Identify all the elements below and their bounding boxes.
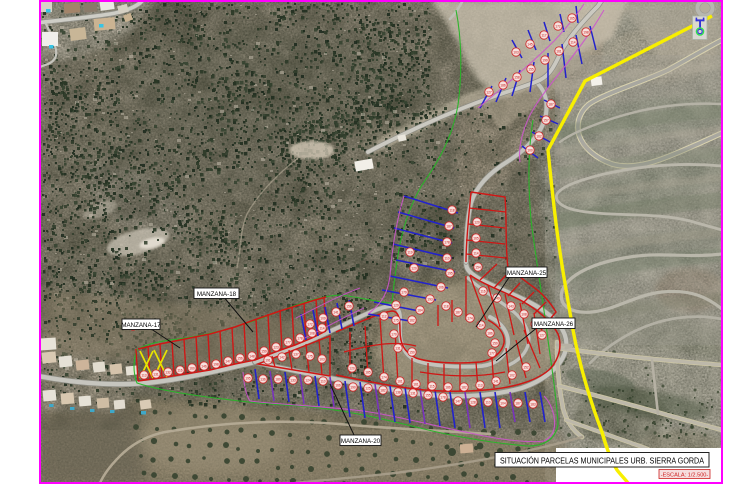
svg-text:129: 129 [393,303,399,307]
svg-text:141: 141 [493,379,499,383]
svg-text:193: 193 [427,297,433,301]
svg-text:138: 138 [395,390,401,394]
svg-text:157: 157 [543,118,549,122]
svg-text:177: 177 [285,340,291,344]
svg-text:174: 174 [381,375,387,379]
svg-text:MANZANA-20: MANZANA-20 [341,438,381,445]
svg-text:195: 195 [447,271,453,275]
svg-text:132: 132 [165,370,171,374]
svg-text:131: 131 [153,372,159,376]
svg-text:177: 177 [489,351,495,355]
svg-text:102: 102 [509,373,515,377]
svg-text:172: 172 [307,322,313,326]
svg-text:183: 183 [530,402,536,406]
svg-text:159: 159 [261,349,267,353]
svg-text:119: 119 [407,250,412,254]
svg-text:112: 112 [381,314,386,318]
svg-text:133: 133 [290,378,296,382]
svg-text:152: 152 [523,365,529,369]
svg-text:187: 187 [548,102,554,106]
svg-text:142: 142 [279,355,285,359]
svg-text:127: 127 [539,333,545,337]
svg-text:178: 178 [297,336,303,340]
svg-text:116: 116 [177,368,182,372]
svg-text:147: 147 [225,359,231,363]
svg-text:137: 137 [293,352,299,356]
svg-text:145: 145 [527,42,533,46]
svg-text:178: 178 [440,395,446,399]
svg-text:117: 117 [541,33,546,37]
svg-text:108: 108 [521,312,527,316]
svg-text:170: 170 [391,332,397,336]
svg-text:161: 161 [397,379,403,383]
svg-text:160: 160 [189,366,195,370]
svg-text:182: 182 [461,385,467,389]
svg-text:131: 131 [395,346,401,350]
svg-text:143: 143 [508,304,514,308]
svg-text:SITUACIÓN PARCELAS MUNICIPALES: SITUACIÓN PARCELAS MUNICIPALES URB. SIER… [500,456,704,466]
svg-text:115: 115 [429,384,434,388]
svg-text:166: 166 [335,383,341,387]
svg-text:118: 118 [443,304,448,308]
svg-text:175: 175 [307,354,313,358]
svg-text:128: 128 [470,400,476,404]
svg-text:198: 198 [213,362,219,366]
svg-text:120: 120 [411,266,417,270]
svg-text:161: 161 [413,382,419,386]
svg-text:116: 116 [480,289,485,293]
svg-text:110: 110 [320,379,325,383]
svg-text:190: 190 [350,385,356,389]
svg-text:162: 162 [536,134,542,138]
svg-text:120: 120 [474,220,480,224]
svg-text:MANZANA-26: MANZANA-26 [534,321,574,328]
svg-text:123: 123 [273,345,279,349]
svg-text:114: 114 [570,40,575,44]
svg-text:MANZANA-18: MANZANA-18 [197,291,237,298]
svg-text:199: 199 [542,58,548,62]
svg-text:109: 109 [320,316,326,320]
svg-text:127: 127 [486,90,492,94]
svg-text:147: 147 [455,399,461,403]
svg-text:114: 114 [319,326,324,330]
svg-text:195: 195 [245,376,251,380]
svg-text:174: 174 [467,316,473,320]
svg-text:156: 156 [237,356,243,360]
svg-text:MANZANA-25: MANZANA-25 [507,270,547,277]
svg-text:103: 103 [319,357,325,361]
svg-text:172: 172 [555,24,561,28]
svg-text:110: 110 [485,400,490,404]
svg-text:182: 182 [380,388,386,392]
svg-text:187: 187 [515,401,521,405]
svg-text:108: 108 [309,331,315,335]
svg-text:-ESCALA: 1/2.500-: -ESCALA: 1/2.500- [661,472,709,478]
svg-text:165: 165 [473,236,479,240]
svg-text:103: 103 [513,50,519,54]
svg-text:155: 155 [528,67,534,71]
svg-text:124: 124 [305,378,311,382]
svg-text:146: 146 [201,364,207,368]
svg-text:136: 136 [260,377,266,381]
svg-text:120: 120 [349,366,355,370]
svg-text:131: 131 [410,391,416,395]
svg-text:164: 164 [417,308,423,312]
svg-text:MANZANA-17: MANZANA-17 [121,322,161,329]
svg-text:106: 106 [438,285,444,289]
svg-text:141: 141 [333,310,339,314]
svg-text:162: 162 [409,318,415,322]
svg-text:113: 113 [141,373,146,377]
svg-text:156: 156 [346,304,352,308]
svg-text:155: 155 [425,393,431,397]
svg-text:180: 180 [275,377,281,381]
svg-text:186: 186 [445,385,451,389]
svg-text:104: 104 [500,401,506,405]
svg-text:175: 175 [393,318,399,322]
svg-text:125: 125 [365,386,371,390]
svg-text:118: 118 [449,208,454,212]
svg-text:187: 187 [446,224,452,228]
svg-text:161: 161 [556,49,562,53]
svg-text:158: 158 [514,75,520,79]
svg-text:186: 186 [487,331,493,335]
svg-text:100: 100 [527,148,533,152]
svg-text:165: 165 [569,16,575,20]
svg-text:159: 159 [492,341,498,345]
svg-text:150: 150 [409,350,415,354]
svg-text:185: 185 [365,370,371,374]
svg-text:110: 110 [444,256,449,260]
svg-text:114: 114 [473,251,478,255]
svg-text:198: 198 [583,30,589,34]
svg-text:148: 148 [249,354,255,358]
svg-text:186: 186 [500,83,506,87]
svg-text:113: 113 [477,383,482,387]
svg-text:178: 178 [444,240,450,244]
svg-text:154: 154 [475,265,481,269]
svg-text:191: 191 [265,358,271,362]
svg-text:179: 179 [401,290,407,294]
svg-text:114: 114 [478,323,483,327]
svg-text:187: 187 [455,310,461,314]
